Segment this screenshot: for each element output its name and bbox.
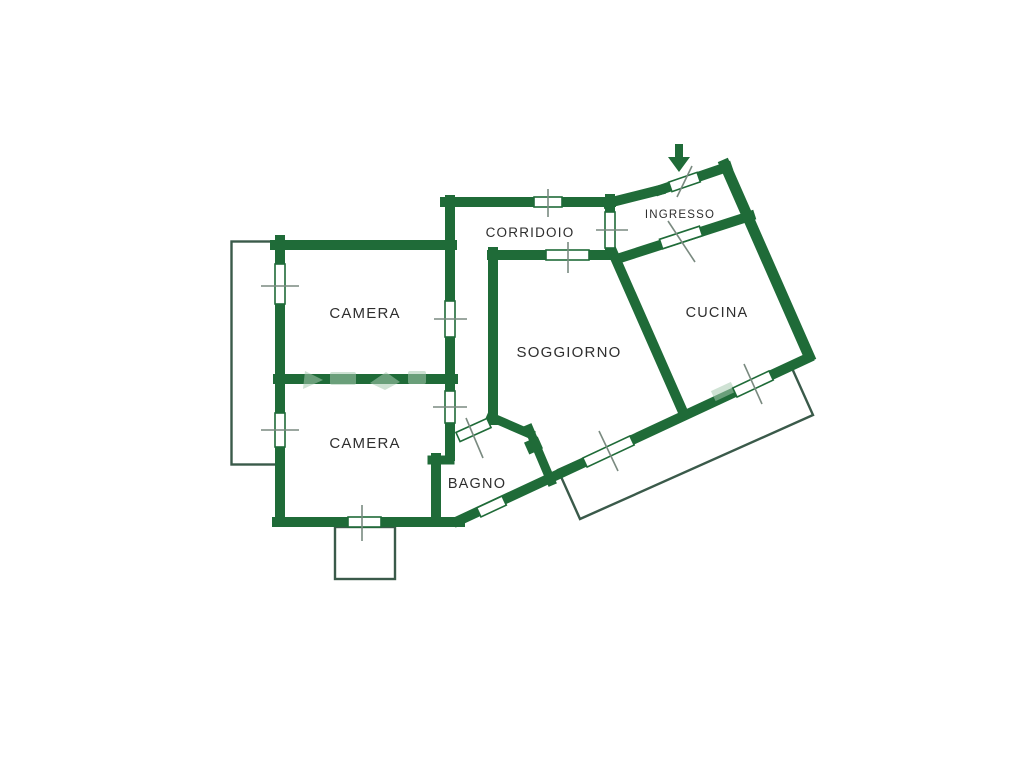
- floor-plan-image: CAMERA CAMERA SOGGIORNO CORRIDOIO INGRES…: [0, 0, 1024, 768]
- balcony-left: [232, 242, 277, 465]
- window-camera2-bottom: [348, 517, 381, 527]
- entrance-arrow-icon: [668, 144, 690, 172]
- room-label-camera-1: CAMERA: [329, 305, 400, 322]
- wall-cucina-right: [725, 165, 809, 356]
- room-label-soggiorno: SOGGIORNO: [517, 344, 622, 361]
- wall-bagno-top: [491, 417, 530, 434]
- wall-cucina-left: [613, 253, 683, 412]
- terrace-outline: [558, 366, 813, 519]
- wall-bagno-right: [529, 429, 551, 481]
- room-label-corridoio: CORRIDOIO: [486, 225, 575, 240]
- wall-ingresso-nw-1: [608, 190, 660, 203]
- room-label-ingresso: INGRESSO: [645, 209, 715, 221]
- room-label-bagno: BAGNO: [448, 476, 506, 492]
- balconies: [232, 242, 814, 580]
- floor-plan-page: CAMERA CAMERA SOGGIORNO CORRIDOIO INGRES…: [0, 0, 1024, 768]
- room-label-cucina: CUCINA: [686, 305, 749, 321]
- opening-ticks: [261, 166, 762, 541]
- room-label-camera-2: CAMERA: [329, 435, 400, 452]
- window-bagno: [477, 496, 507, 517]
- balcony-bottom: [335, 527, 395, 579]
- window-camera1-left: [275, 264, 285, 304]
- door-bagno: [456, 418, 491, 441]
- door-ingresso-cucina: [659, 226, 702, 249]
